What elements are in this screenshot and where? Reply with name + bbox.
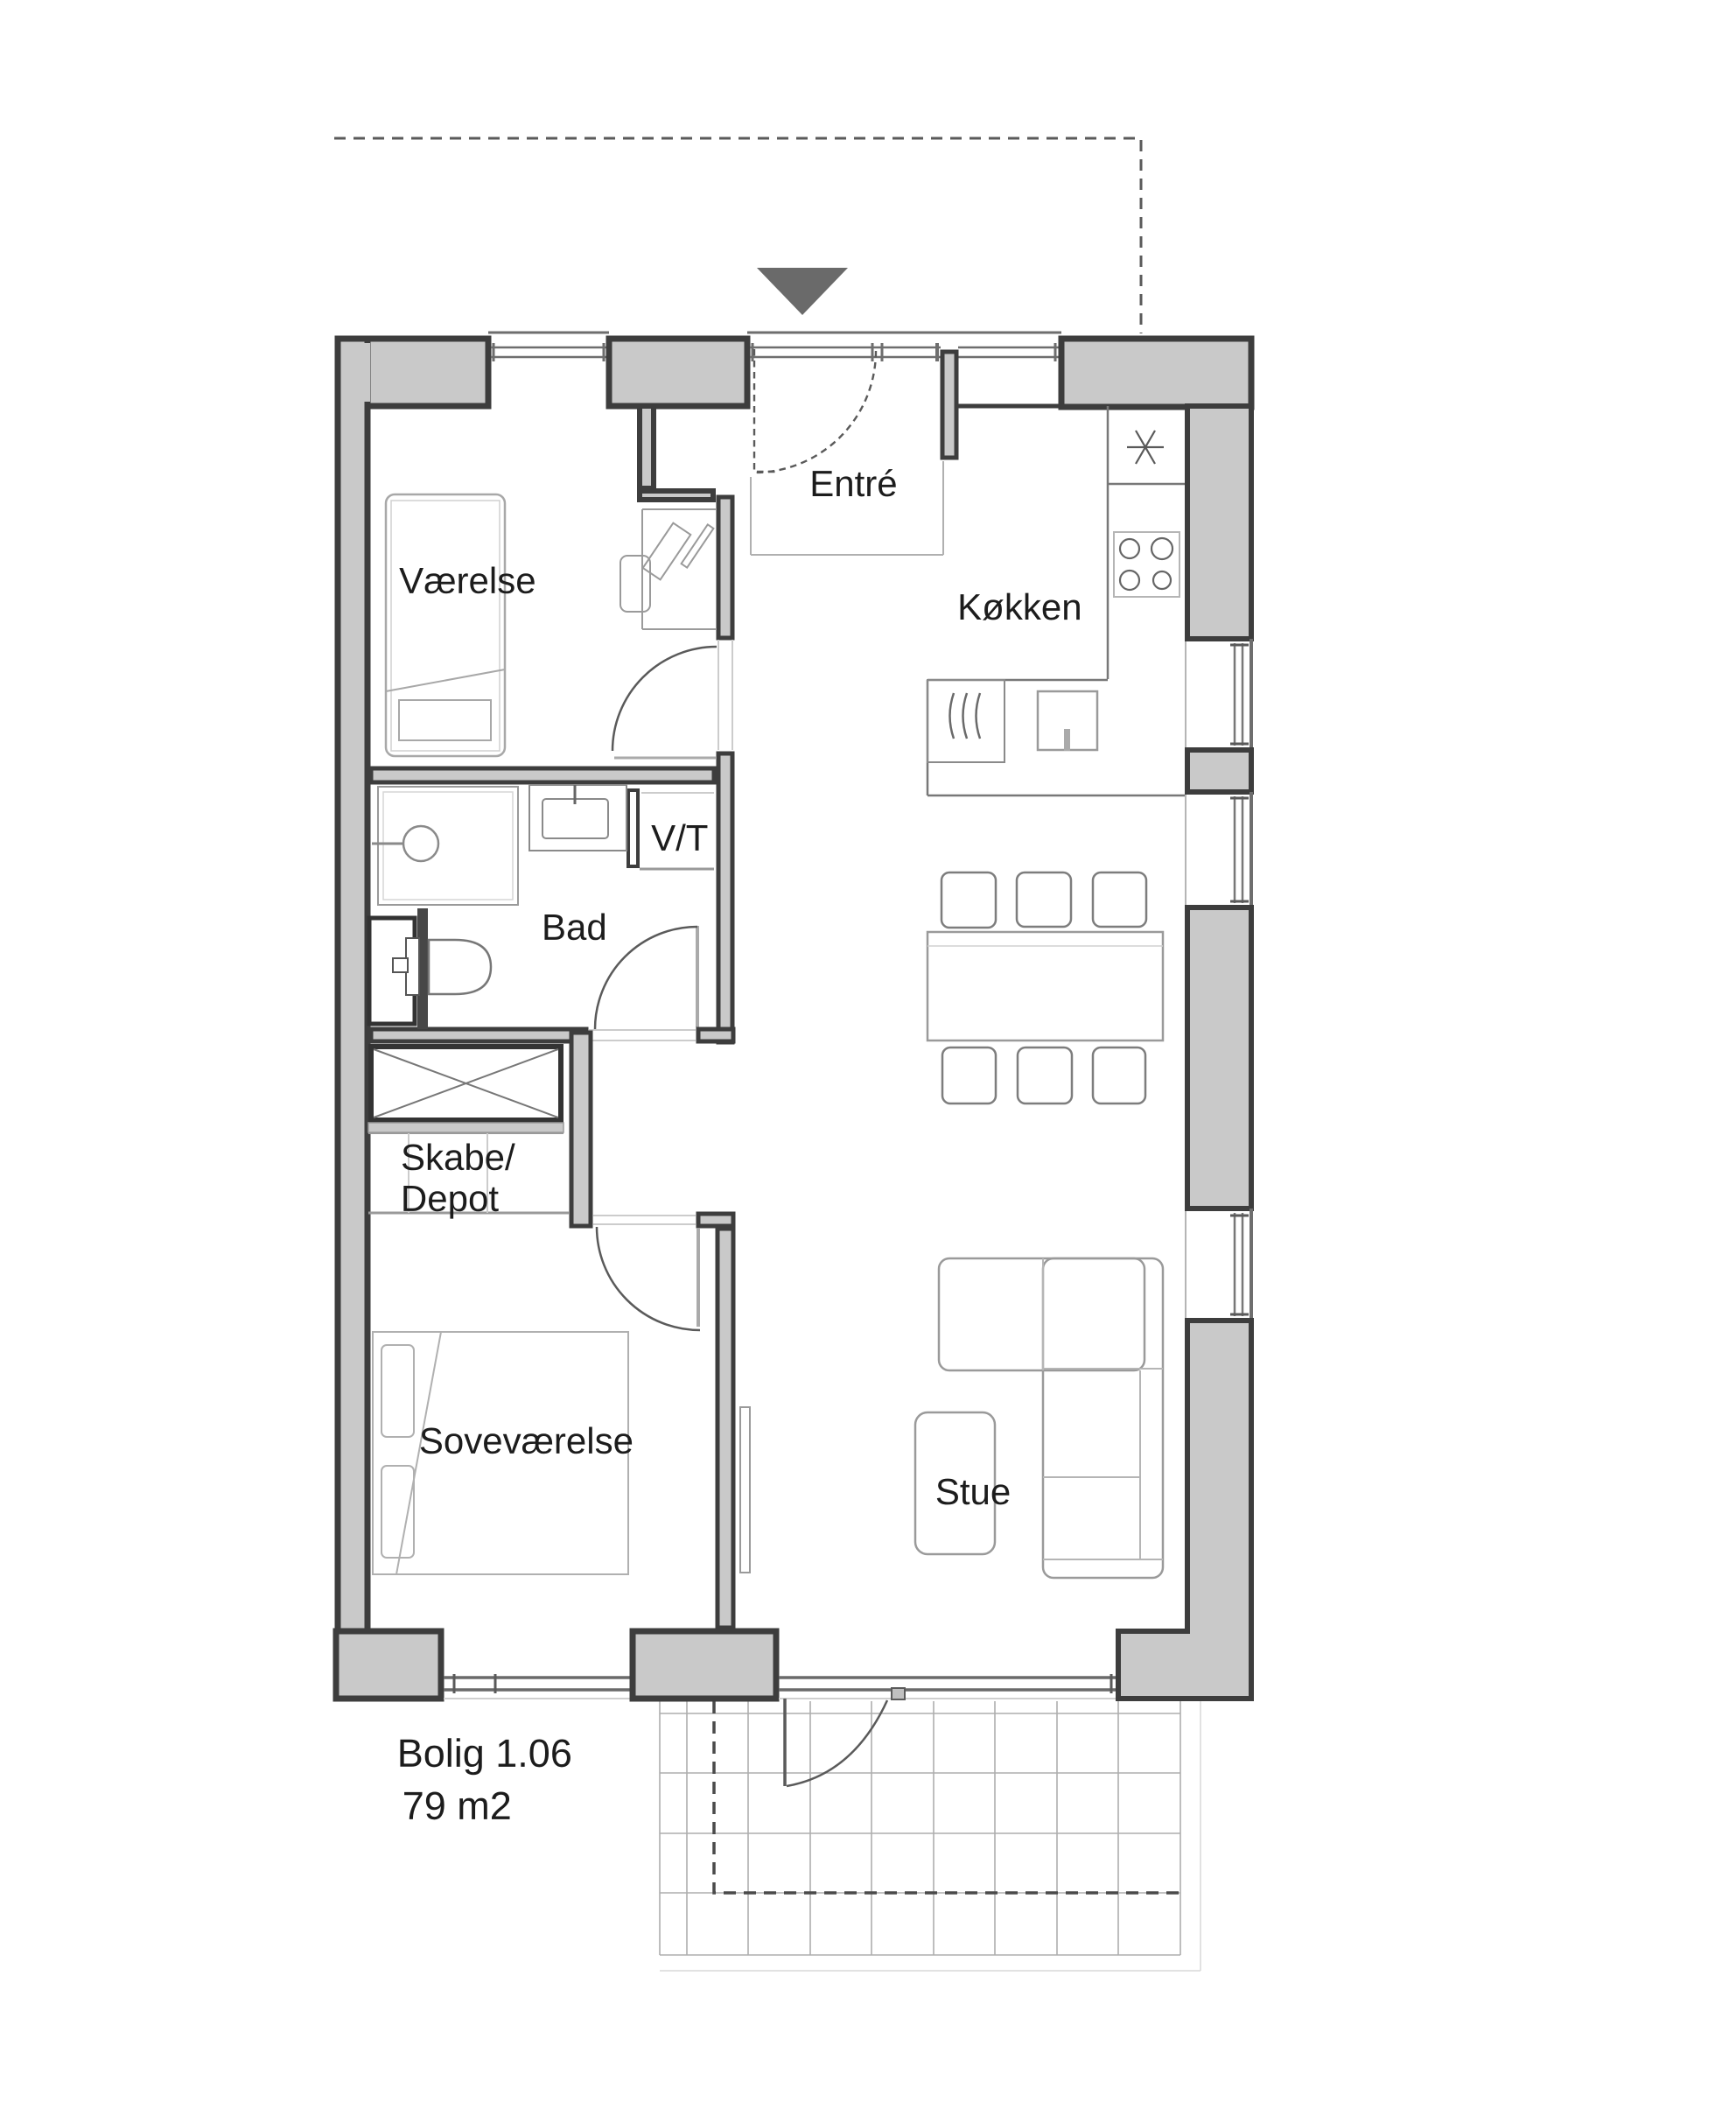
svg-text:Entré: Entré: [809, 463, 897, 504]
svg-text:Bad: Bad: [542, 907, 607, 948]
svg-text:Skabe/: Skabe/: [401, 1137, 515, 1178]
svg-text:Depot: Depot: [401, 1178, 499, 1219]
svg-text:Stue: Stue: [935, 1471, 1011, 1512]
svg-text:Soveværelse: Soveværelse: [419, 1420, 633, 1461]
svg-text:Bolig 1.06: Bolig 1.06: [397, 1731, 572, 1776]
svg-text:79 m2: 79 m2: [402, 1783, 512, 1828]
svg-text:Værelse: Værelse: [399, 560, 535, 601]
svg-text:V/T: V/T: [651, 817, 708, 858]
svg-text:Køkken: Køkken: [957, 586, 1081, 627]
